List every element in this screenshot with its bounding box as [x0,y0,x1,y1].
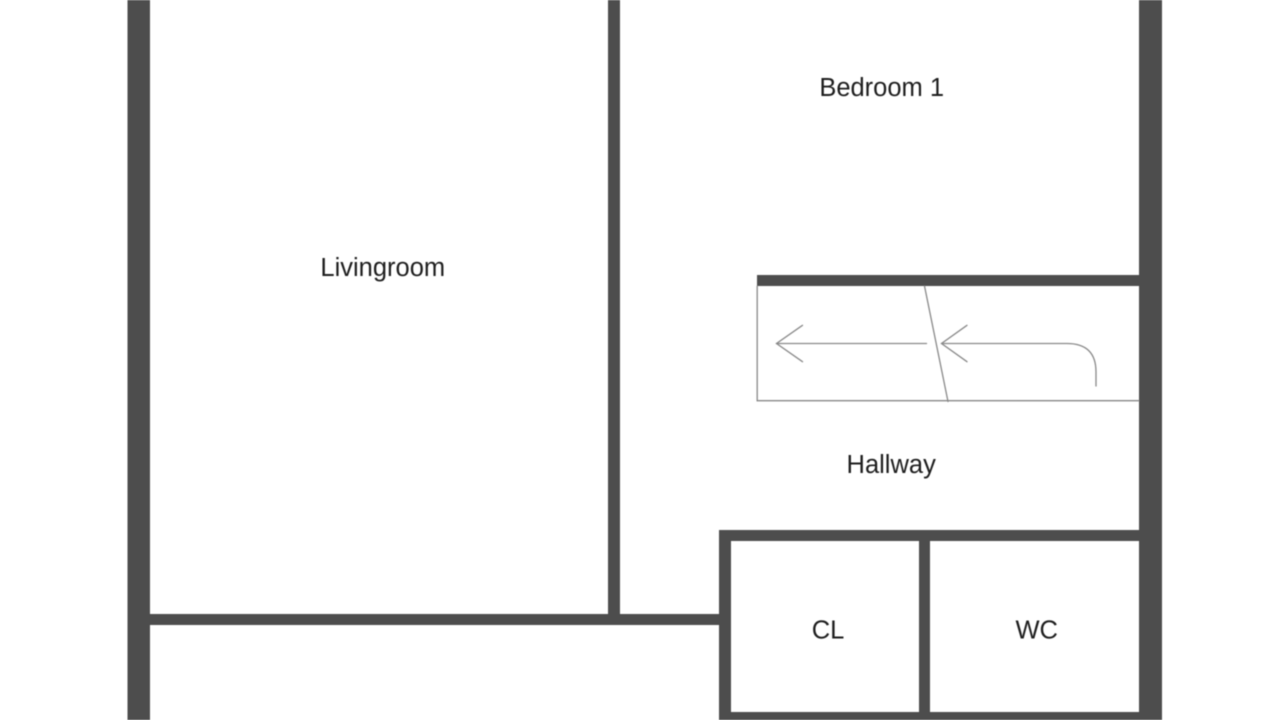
svg-text:WC: WC [1015,617,1057,645]
svg-text:Hallway: Hallway [847,451,937,479]
svg-text:Livingroom: Livingroom [320,254,445,282]
svg-text:CL: CL [812,617,845,645]
svg-text:Bedroom 1: Bedroom 1 [819,74,944,102]
